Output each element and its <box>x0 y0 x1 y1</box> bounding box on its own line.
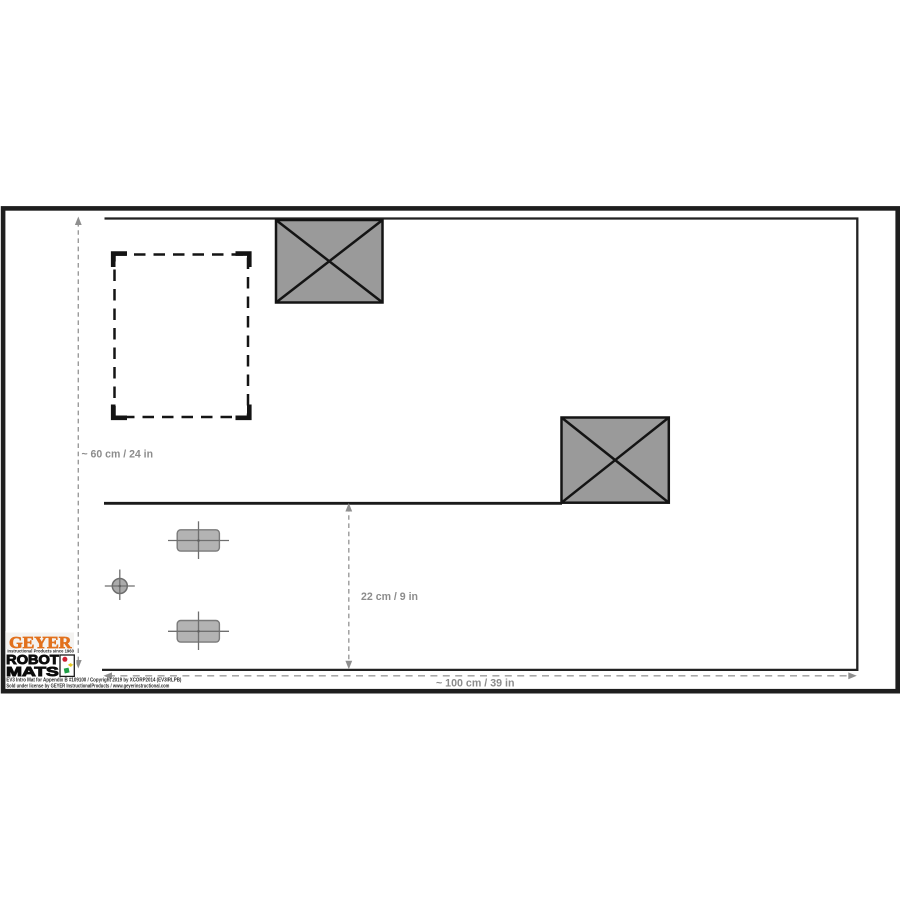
svg-text:~ 100 cm / 39 in: ~ 100 cm / 39 in <box>436 677 515 689</box>
svg-text:~ 60 cm / 24 in: ~ 60 cm / 24 in <box>82 448 154 460</box>
svg-text:22 cm / 9 in: 22 cm / 9 in <box>361 591 418 603</box>
svg-text:Sold under license by GEYER In: Sold under license by GEYER Instructiona… <box>6 683 169 689</box>
